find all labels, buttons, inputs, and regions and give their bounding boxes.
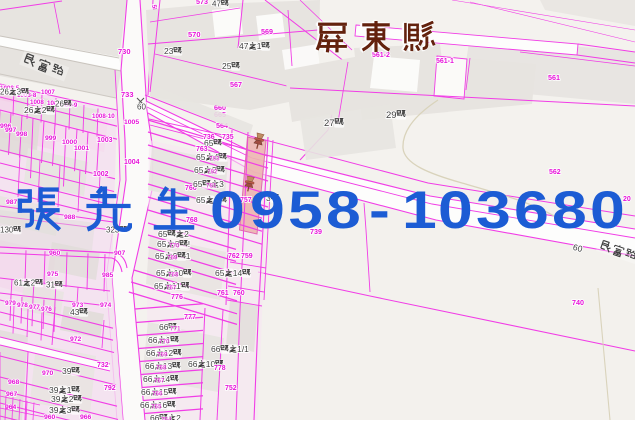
svg-text:999: 999 (45, 135, 57, 142)
svg-text:66: 66 (188, 359, 198, 369)
svg-text:66: 66 (211, 344, 221, 354)
svg-text:768: 768 (156, 365, 167, 372)
svg-text:60: 60 (137, 103, 146, 112)
svg-text:770: 770 (159, 339, 170, 346)
svg-text:767: 767 (154, 378, 165, 385)
svg-text:23: 23 (164, 46, 174, 56)
svg-text:967: 967 (6, 391, 18, 398)
svg-text:768: 768 (168, 272, 179, 279)
svg-text:65: 65 (156, 268, 166, 278)
svg-text:26: 26 (24, 105, 34, 115)
svg-text:998: 998 (16, 131, 28, 138)
svg-text:730: 730 (118, 47, 131, 56)
svg-text:970: 970 (42, 370, 54, 377)
svg-text:1: 1 (186, 251, 191, 261)
svg-text:39: 39 (62, 366, 72, 376)
svg-text:777: 777 (184, 312, 196, 321)
svg-text:976: 976 (41, 306, 52, 313)
svg-text:960: 960 (49, 250, 61, 257)
svg-text:960: 960 (44, 414, 56, 420)
svg-text:765: 765 (151, 404, 162, 411)
svg-text:972: 972 (70, 336, 82, 343)
svg-text:760: 760 (233, 290, 245, 297)
svg-text:771: 771 (170, 326, 181, 333)
svg-text:979: 979 (5, 300, 16, 307)
svg-text:764: 764 (161, 417, 172, 421)
svg-text:766: 766 (152, 391, 163, 398)
svg-text:!: ! (188, 239, 190, 249)
svg-text:561: 561 (548, 73, 560, 82)
svg-text:65: 65 (193, 179, 203, 189)
svg-text:966: 966 (80, 414, 92, 420)
svg-text:974: 974 (100, 302, 112, 309)
svg-text:66: 66 (145, 361, 155, 371)
svg-text:769: 769 (157, 352, 168, 359)
svg-text:66: 66 (159, 322, 169, 332)
svg-text:768: 768 (186, 217, 198, 224)
svg-text:47: 47 (212, 0, 221, 9)
svg-text:65: 65 (155, 251, 165, 261)
svg-text:997: 997 (5, 127, 17, 134)
svg-text:2: 2 (184, 229, 189, 239)
svg-text:562: 562 (549, 169, 561, 176)
svg-text:740: 740 (572, 298, 584, 307)
svg-text:735: 735 (222, 134, 234, 141)
svg-text:1007: 1007 (41, 89, 55, 96)
svg-text:732: 732 (97, 362, 109, 369)
svg-text:61: 61 (14, 279, 23, 288)
svg-text:26: 26 (0, 88, 9, 97)
svg-text:26: 26 (55, 100, 64, 109)
svg-text:1004: 1004 (124, 159, 140, 166)
svg-text:1003: 1003 (97, 137, 113, 144)
svg-text:66: 66 (150, 413, 160, 420)
svg-text:573: 573 (196, 0, 208, 6)
svg-text:776: 776 (171, 292, 183, 301)
svg-text:29: 29 (386, 110, 397, 121)
svg-text:767: 767 (166, 285, 177, 292)
svg-text:1001: 1001 (74, 145, 89, 152)
svg-text:561-1: 561-1 (436, 58, 454, 65)
svg-text:66: 66 (146, 348, 156, 358)
svg-text:65: 65 (196, 195, 206, 205)
svg-text:778: 778 (214, 365, 226, 372)
svg-text:1005: 1005 (124, 119, 139, 126)
svg-text:769: 769 (167, 255, 178, 262)
svg-text:66: 66 (148, 335, 158, 345)
svg-text:65: 65 (154, 281, 164, 291)
svg-text:14: 14 (233, 268, 243, 278)
svg-text:47: 47 (239, 41, 249, 51)
svg-text:978: 978 (17, 302, 28, 309)
svg-text:569: 569 (261, 27, 273, 36)
svg-text:1/1: 1/1 (237, 344, 249, 354)
svg-text:1008-10: 1008-10 (92, 113, 115, 120)
svg-text:31: 31 (46, 281, 55, 290)
svg-text:977: 977 (29, 304, 40, 311)
svg-text:1002: 1002 (93, 171, 109, 178)
svg-text:65: 65 (157, 239, 167, 249)
svg-text:25: 25 (222, 61, 232, 71)
svg-text:975: 975 (47, 271, 59, 278)
svg-text:567: 567 (230, 80, 242, 89)
svg-text:130: 130 (0, 226, 14, 235)
svg-text:2: 2 (176, 413, 181, 420)
svg-text:66: 66 (141, 387, 151, 397)
svg-text:752: 752 (225, 385, 237, 392)
svg-text:762: 762 (228, 253, 240, 260)
svg-text:988: 988 (64, 214, 76, 221)
svg-text:985: 985 (102, 272, 114, 279)
svg-text:987: 987 (6, 199, 18, 206)
svg-text:782: 782 (207, 169, 218, 176)
svg-text:65: 65 (194, 165, 204, 175)
svg-text:65: 65 (158, 229, 168, 239)
svg-text:39: 39 (51, 394, 61, 404)
svg-text:783: 783 (209, 156, 220, 163)
svg-text:0958-103680: 0958-103680 (210, 181, 625, 240)
svg-text:761: 761 (217, 290, 229, 297)
svg-text:66: 66 (140, 400, 150, 410)
svg-text:66: 66 (143, 374, 153, 384)
svg-text:43: 43 (70, 307, 80, 317)
svg-text:907: 907 (114, 250, 126, 257)
svg-text:792: 792 (104, 385, 116, 392)
svg-text:27: 27 (324, 118, 335, 129)
svg-text:65: 65 (196, 152, 206, 162)
svg-text:65: 65 (215, 268, 225, 278)
svg-text:770: 770 (169, 243, 180, 250)
svg-text:733: 733 (121, 90, 134, 99)
svg-text:570: 570 (188, 30, 201, 39)
svg-text:759: 759 (241, 253, 253, 260)
svg-text:968: 968 (8, 379, 20, 386)
